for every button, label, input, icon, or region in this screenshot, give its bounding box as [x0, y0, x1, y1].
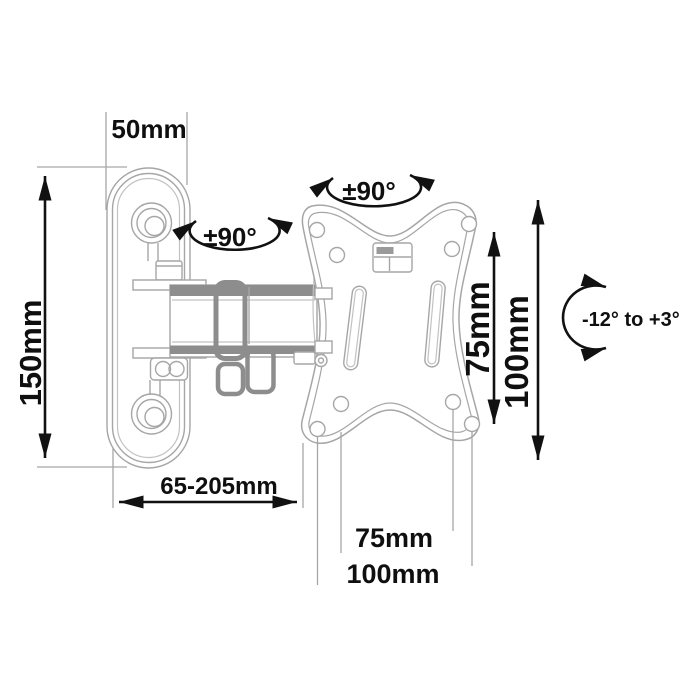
- cable-clip-left: [218, 364, 243, 394]
- label-bracket-width: 50mm: [111, 114, 186, 144]
- label-vesa-bottom-100: 100mm: [346, 559, 439, 589]
- label-wall-swivel: ±90°: [203, 222, 257, 252]
- label-plate-swivel: ±90°: [342, 176, 396, 206]
- label-vesa-bottom-75: 75mm: [355, 523, 433, 553]
- mount-spec-diagram: 50mm 150mm ±90° ±90° 65-205mm 75mm 100mm…: [0, 0, 700, 700]
- label-wall-plate-height: 150mm: [13, 300, 48, 407]
- diagram-canvas: 50mm 150mm ±90° ±90° 65-205mm 75mm 100mm…: [0, 0, 700, 700]
- label-vesa-side-75: 75mm: [459, 281, 496, 376]
- extension-arm-drawing: [170, 283, 317, 395]
- label-extension-range: 65-205mm: [160, 473, 277, 500]
- label-vesa-side-100: 100mm: [498, 295, 535, 409]
- label-tilt-range: -12° to +3°: [582, 309, 680, 331]
